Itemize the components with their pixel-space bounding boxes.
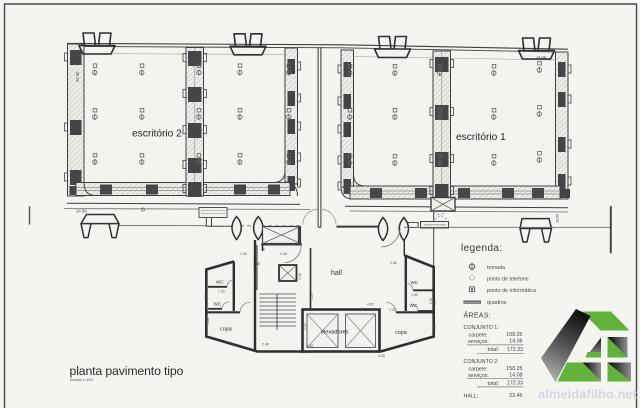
- svg-text:4.50: 4.50: [306, 344, 313, 348]
- svg-text:4.50: 4.50: [378, 354, 385, 358]
- svg-text:172.33: 172.33: [507, 347, 523, 353]
- svg-text:158.25: 158.25: [506, 366, 522, 372]
- svg-text:2.40: 2.40: [280, 252, 287, 256]
- svg-text:18.58: 18.58: [556, 214, 560, 223]
- svg-text:1.30: 1.30: [204, 294, 208, 300]
- svg-text:1.00: 1.00: [310, 293, 314, 300]
- svg-text:carpete:: carpete:: [469, 366, 488, 372]
- svg-text:copa: copa: [220, 327, 232, 333]
- svg-text:escritório 2: escritório 2: [132, 129, 182, 140]
- svg-text:4.16: 4.16: [298, 273, 302, 280]
- svg-text:14.88: 14.88: [76, 209, 87, 214]
- svg-text:2.40: 2.40: [390, 261, 397, 265]
- svg-text:escritório 1: escritório 1: [456, 132, 506, 143]
- svg-text:14.08: 14.08: [509, 339, 522, 345]
- svg-text:CONJUNTO 1:: CONJUNTO 1:: [464, 325, 499, 331]
- svg-text:ponto de telefone: ponto de telefone: [487, 276, 529, 282]
- svg-text:total:: total:: [488, 381, 499, 387]
- svg-text:WC: WC: [411, 280, 419, 285]
- svg-text:WC: WC: [216, 280, 224, 285]
- svg-text:4.02: 4.02: [367, 303, 374, 307]
- svg-text:2.20: 2.20: [303, 323, 307, 330]
- svg-text:CONJUNTO 2:: CONJUNTO 2:: [464, 359, 499, 365]
- svg-text:serviços:: serviços:: [468, 373, 489, 379]
- svg-text:quadros: quadros: [487, 300, 507, 306]
- svg-text:elevadores: elevadores: [321, 330, 349, 336]
- svg-text:172.33: 172.33: [507, 381, 523, 387]
- svg-text:hall: hall: [331, 270, 342, 277]
- svg-text:legenda:: legenda:: [461, 243, 503, 254]
- svg-text:ÁREAS:: ÁREAS:: [464, 311, 491, 320]
- svg-text:2.40: 2.40: [262, 343, 269, 347]
- svg-text:1.66: 1.66: [206, 318, 210, 324]
- svg-text:158.25: 158.25: [506, 332, 522, 338]
- svg-text:total:: total:: [488, 347, 499, 353]
- svg-text:tomada: tomada: [487, 265, 505, 271]
- svg-text:1.30: 1.30: [240, 252, 247, 256]
- svg-text:23.46: 23.46: [509, 393, 522, 399]
- svg-text:WC: WC: [214, 302, 222, 307]
- svg-text:serviços:: serviços:: [468, 339, 489, 345]
- svg-text:1.50: 1.50: [411, 293, 418, 297]
- svg-text:carpete:: carpete:: [469, 332, 488, 338]
- svg-text:ponto de informática: ponto de informática: [487, 288, 536, 294]
- svg-text:1.50: 1.50: [218, 290, 225, 294]
- svg-text:escala 1:100: escala 1:100: [70, 377, 93, 382]
- svg-text:1.95: 1.95: [433, 324, 437, 330]
- svg-text:06.90: 06.90: [75, 71, 80, 82]
- svg-text:planta pavimento tipo: planta pavimento tipo: [70, 364, 184, 378]
- svg-text:almeidafilho.net: almeidafilho.net: [538, 387, 638, 402]
- svg-text:copa: copa: [395, 330, 407, 336]
- svg-text:1.05: 1.05: [433, 299, 437, 305]
- svg-text:14.08: 14.08: [509, 373, 522, 379]
- svg-text:R: R: [262, 248, 265, 252]
- svg-text:1.20: 1.20: [389, 308, 396, 312]
- svg-text:HALL:: HALL:: [464, 394, 479, 400]
